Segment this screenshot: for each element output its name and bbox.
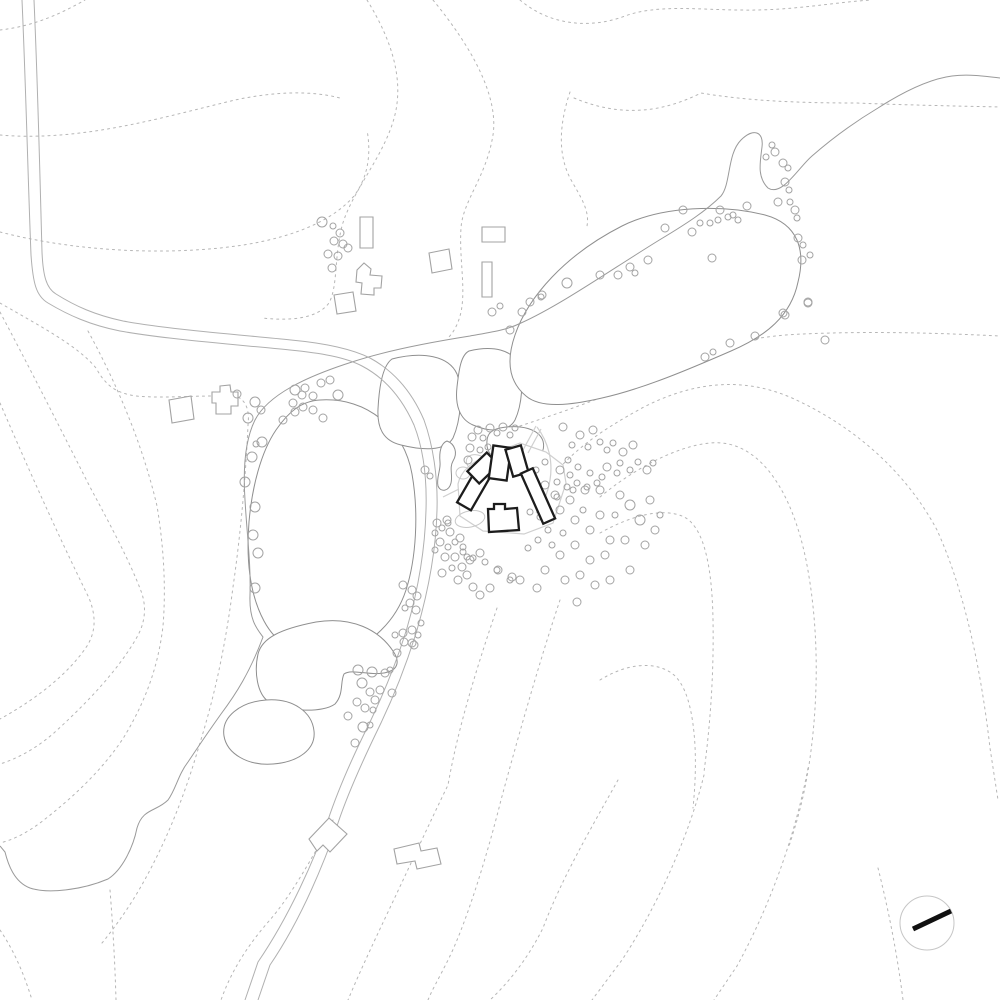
contour-line bbox=[490, 780, 618, 1000]
contour-line bbox=[0, 130, 369, 251]
tree-symbol bbox=[330, 237, 338, 245]
tree-symbol bbox=[400, 638, 408, 646]
tree-symbol bbox=[410, 641, 418, 649]
tree-symbol bbox=[616, 491, 624, 499]
tree-symbol bbox=[250, 397, 260, 407]
tree-symbol bbox=[376, 686, 384, 694]
contour-line bbox=[428, 600, 560, 1000]
tree-symbol bbox=[769, 142, 775, 148]
tree-symbol bbox=[361, 704, 369, 712]
tree-symbol bbox=[317, 379, 325, 387]
tree-symbol bbox=[791, 206, 799, 214]
tree-symbol bbox=[402, 605, 408, 611]
context-building bbox=[309, 818, 347, 852]
contour-line bbox=[574, 93, 1000, 110]
north-needle-icon bbox=[913, 911, 951, 929]
tree-symbol bbox=[821, 336, 829, 344]
tree-symbol bbox=[763, 154, 769, 160]
tree-symbol bbox=[589, 426, 597, 434]
tree-symbol bbox=[599, 474, 605, 480]
tree-symbol bbox=[559, 423, 567, 431]
tree-symbol bbox=[794, 215, 800, 221]
tree-symbol bbox=[573, 598, 581, 606]
tree-symbol bbox=[566, 496, 574, 504]
tree-symbol bbox=[353, 698, 361, 706]
tree-symbol bbox=[586, 556, 594, 564]
tree-symbol bbox=[807, 252, 813, 258]
tree-symbol bbox=[494, 567, 500, 573]
tree-symbol bbox=[441, 553, 449, 561]
tree-symbol bbox=[247, 452, 257, 462]
tree-symbol bbox=[629, 441, 637, 449]
tree-symbol bbox=[576, 571, 584, 579]
contour-line bbox=[548, 385, 998, 800]
tree-symbol bbox=[743, 202, 751, 210]
tree-symbol bbox=[477, 447, 483, 453]
tree-symbol bbox=[458, 563, 466, 571]
tree-symbol bbox=[612, 512, 618, 518]
tree-symbol bbox=[344, 244, 352, 252]
tree-symbol bbox=[601, 551, 609, 559]
tree-symbol bbox=[324, 250, 332, 258]
tree-symbol bbox=[413, 592, 421, 600]
tree-symbol bbox=[561, 576, 569, 584]
tree-symbol bbox=[454, 576, 462, 584]
tree-symbol bbox=[330, 223, 336, 229]
tree-symbol bbox=[438, 569, 446, 577]
tree-symbol bbox=[626, 566, 634, 574]
tree-symbol bbox=[449, 565, 455, 571]
tree-symbol bbox=[800, 242, 806, 248]
tree-symbol bbox=[591, 581, 599, 589]
tree-symbol bbox=[392, 632, 398, 638]
tree-symbol bbox=[785, 165, 791, 171]
tree-symbol bbox=[646, 496, 654, 504]
tree-symbol bbox=[371, 696, 379, 704]
main-building-annex bbox=[488, 504, 519, 532]
contour-line bbox=[520, 0, 872, 23]
tree-symbol bbox=[574, 480, 580, 486]
tree-symbol bbox=[575, 464, 581, 470]
contour-line bbox=[0, 0, 85, 30]
tree-symbol bbox=[571, 516, 579, 524]
contour-line bbox=[110, 890, 116, 1000]
tree-symbol bbox=[482, 559, 488, 565]
contour-line bbox=[592, 775, 704, 1000]
tree-symbol bbox=[358, 722, 368, 732]
tree-symbol bbox=[771, 148, 779, 156]
context-building bbox=[360, 217, 373, 248]
tree-symbol bbox=[586, 526, 594, 534]
tree-symbol bbox=[597, 439, 603, 445]
tree-symbol bbox=[334, 252, 342, 260]
tree-symbol bbox=[580, 507, 586, 513]
tree-symbol bbox=[560, 530, 566, 536]
tree-symbol bbox=[408, 626, 416, 634]
tree-symbol bbox=[366, 688, 374, 696]
tree-symbol bbox=[651, 526, 659, 534]
field-boundary bbox=[224, 700, 314, 764]
context-building bbox=[169, 396, 194, 423]
tree-symbol bbox=[257, 406, 265, 414]
tree-symbol bbox=[576, 431, 584, 439]
tree-symbol bbox=[606, 576, 614, 584]
tree-symbol bbox=[606, 536, 614, 544]
field-boundary bbox=[256, 621, 397, 711]
tree-symbol bbox=[476, 591, 484, 599]
context-building bbox=[482, 227, 505, 242]
tree-symbol bbox=[412, 606, 420, 614]
tree-symbol bbox=[545, 527, 551, 533]
tree-symbol bbox=[625, 500, 635, 510]
tree-symbol bbox=[357, 678, 367, 688]
tree-symbol bbox=[774, 198, 782, 206]
tree-symbol bbox=[463, 571, 471, 579]
tree-symbol bbox=[603, 463, 611, 471]
tree-symbol bbox=[786, 187, 792, 193]
tree-symbol bbox=[657, 512, 663, 518]
field-boundary bbox=[378, 355, 461, 448]
tree-symbol bbox=[451, 553, 459, 561]
tree-symbol bbox=[445, 544, 451, 550]
field-boundary bbox=[438, 441, 456, 490]
tree-symbol bbox=[344, 712, 352, 720]
tree-symbol bbox=[571, 541, 579, 549]
tree-symbol bbox=[486, 584, 494, 592]
tree-symbol bbox=[621, 536, 629, 544]
tree-symbol bbox=[533, 584, 541, 592]
tree-symbol bbox=[567, 472, 573, 478]
tree-symbol bbox=[469, 583, 477, 591]
contour-line bbox=[0, 930, 32, 1000]
site-plan-canvas bbox=[0, 0, 1000, 1000]
tree-symbol bbox=[610, 440, 616, 446]
tree-symbol bbox=[439, 525, 445, 531]
tree-symbol bbox=[432, 530, 438, 536]
tree-symbol bbox=[596, 511, 604, 519]
tree-symbol bbox=[333, 390, 343, 400]
tree-symbol bbox=[516, 576, 524, 584]
tree-symbol bbox=[339, 240, 347, 248]
tree-symbol bbox=[427, 473, 433, 479]
contour-line bbox=[0, 93, 340, 136]
tree-symbol bbox=[351, 739, 359, 747]
tree-symbol bbox=[309, 392, 317, 400]
tree-symbol bbox=[468, 433, 476, 441]
tree-symbol bbox=[585, 444, 591, 450]
north-arrow bbox=[900, 896, 954, 950]
context-building bbox=[334, 292, 356, 314]
tree-symbol bbox=[594, 480, 600, 486]
contour-line bbox=[561, 92, 587, 226]
tree-symbol bbox=[787, 199, 793, 205]
tree-symbol bbox=[446, 528, 454, 536]
tree-symbol bbox=[497, 303, 503, 309]
contour-line bbox=[714, 768, 808, 1000]
contour-line bbox=[878, 868, 903, 1000]
tree-symbol bbox=[436, 538, 444, 546]
tree-symbol bbox=[556, 551, 564, 559]
tree-symbol bbox=[587, 470, 593, 476]
tree-symbol bbox=[619, 448, 627, 456]
contour-line bbox=[0, 303, 248, 943]
context-building bbox=[429, 249, 452, 273]
tree-symbol bbox=[569, 442, 575, 448]
context-building bbox=[212, 385, 238, 414]
tree-symbol bbox=[627, 467, 633, 473]
contour-line bbox=[600, 443, 816, 846]
tree-symbol bbox=[480, 435, 486, 441]
tree-symbol bbox=[518, 308, 526, 316]
context-building bbox=[394, 843, 441, 869]
tree-symbol bbox=[326, 376, 334, 384]
tree-symbol bbox=[253, 441, 259, 447]
tree-symbol bbox=[635, 459, 641, 465]
tree-symbol bbox=[614, 470, 620, 476]
contour-line bbox=[0, 312, 144, 764]
tree-symbol bbox=[328, 264, 336, 272]
tree-symbol bbox=[298, 391, 306, 399]
contour-line bbox=[600, 513, 713, 772]
tree-symbol bbox=[535, 537, 541, 543]
tree-symbol bbox=[476, 549, 484, 557]
tree-symbol bbox=[617, 460, 623, 466]
tree-symbol bbox=[432, 547, 438, 553]
site-plan-drawing bbox=[0, 0, 1000, 1000]
tree-symbol bbox=[641, 541, 649, 549]
tree-symbol bbox=[570, 487, 576, 493]
context-building bbox=[356, 263, 382, 295]
tree-symbol bbox=[596, 486, 604, 494]
tree-symbol bbox=[604, 447, 610, 453]
tree-symbol bbox=[565, 457, 571, 463]
tree-symbol bbox=[643, 466, 651, 474]
tree-symbol bbox=[488, 308, 496, 316]
contour-line bbox=[0, 403, 94, 719]
tree-symbol bbox=[466, 444, 474, 452]
tree-symbol bbox=[452, 539, 458, 545]
tree-symbol bbox=[541, 566, 549, 574]
tree-symbol bbox=[549, 542, 555, 548]
tree-symbol bbox=[289, 399, 297, 407]
context-building bbox=[482, 262, 492, 297]
tree-symbol bbox=[525, 545, 531, 551]
